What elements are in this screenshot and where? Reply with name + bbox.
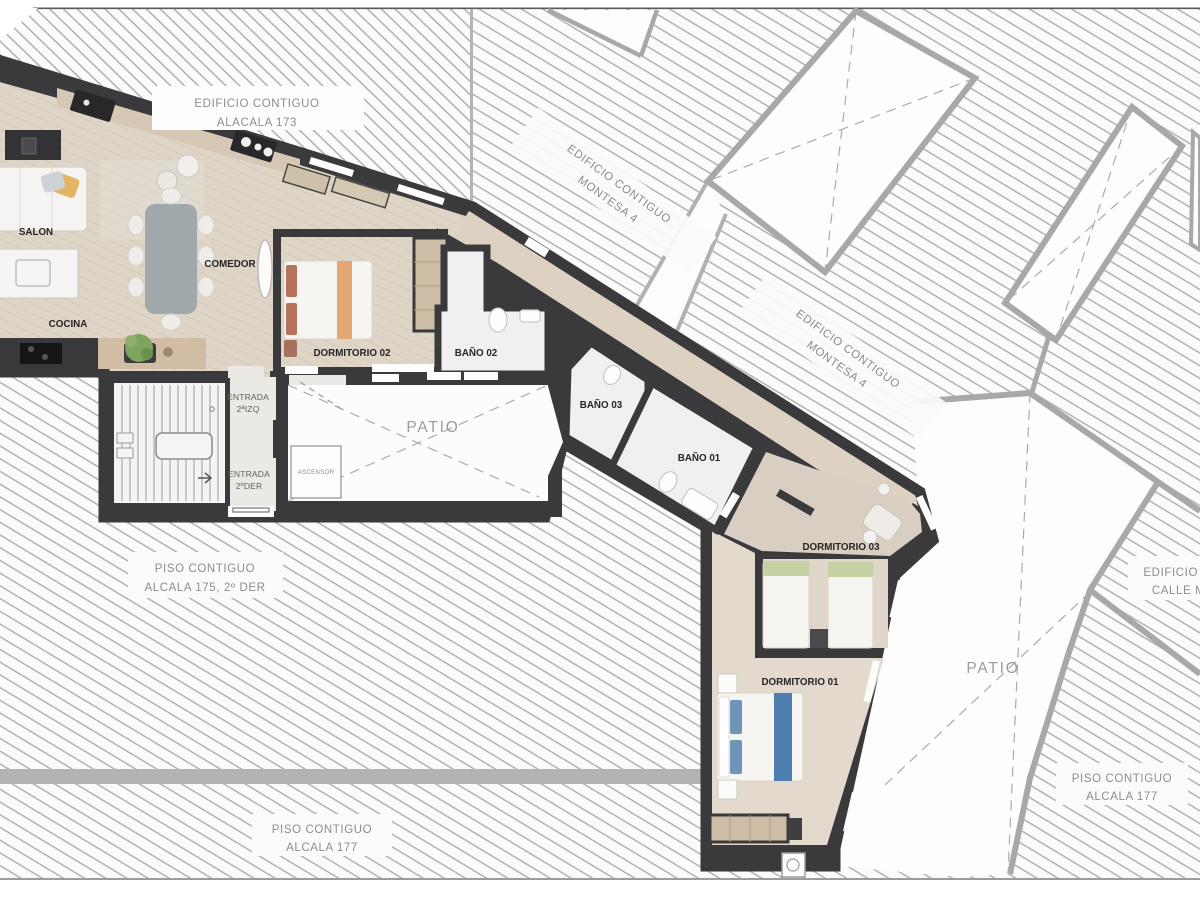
svg-text:ENTRADA: ENTRADA [227, 392, 269, 402]
svg-text:ASCENSOR: ASCENSOR [298, 470, 335, 476]
svg-text:DORMITORIO 01: DORMITORIO 01 [761, 677, 839, 688]
svg-text:SALON: SALON [19, 227, 53, 238]
svg-text:DORMITORIO 02: DORMITORIO 02 [313, 348, 391, 359]
svg-text:EDIFICIO CONTIGUO: EDIFICIO CONTIGUO [194, 98, 319, 110]
svg-text:PISO CONTIGUO: PISO CONTIGUO [272, 824, 372, 836]
svg-text:ALCALA 175, 2º DER: ALCALA 175, 2º DER [144, 582, 265, 594]
svg-text:BAÑO 03: BAÑO 03 [580, 400, 623, 411]
svg-text:PATIO: PATIO [966, 660, 1019, 677]
svg-text:2ªIZQ: 2ªIZQ [236, 404, 259, 414]
svg-text:COMEDOR: COMEDOR [204, 259, 255, 270]
svg-text:2ºDER: 2ºDER [236, 481, 263, 491]
svg-text:BAÑO 01: BAÑO 01 [678, 453, 721, 464]
svg-text:PISO CONTIGUO: PISO CONTIGUO [155, 563, 255, 575]
svg-text:ALCALA 177: ALCALA 177 [286, 842, 358, 854]
svg-text:ALACALA 173: ALACALA 173 [217, 117, 297, 129]
svg-text:DORMITORIO 03: DORMITORIO 03 [802, 542, 880, 553]
svg-text:BAÑO 02: BAÑO 02 [455, 348, 498, 359]
svg-text:COCINA: COCINA [49, 319, 88, 330]
svg-text:PATIO: PATIO [406, 419, 459, 436]
svg-text:PISO CONTIGUO: PISO CONTIGUO [1072, 773, 1172, 785]
svg-text:ENTRADA: ENTRADA [228, 469, 270, 479]
svg-text:EDIFICIO CONTIGUO: EDIFICIO CONTIGUO [1143, 567, 1200, 579]
svg-text:ALCALA 177: ALCALA 177 [1086, 791, 1158, 803]
svg-text:CALLE MONTESA: CALLE MONTESA [1152, 585, 1200, 597]
